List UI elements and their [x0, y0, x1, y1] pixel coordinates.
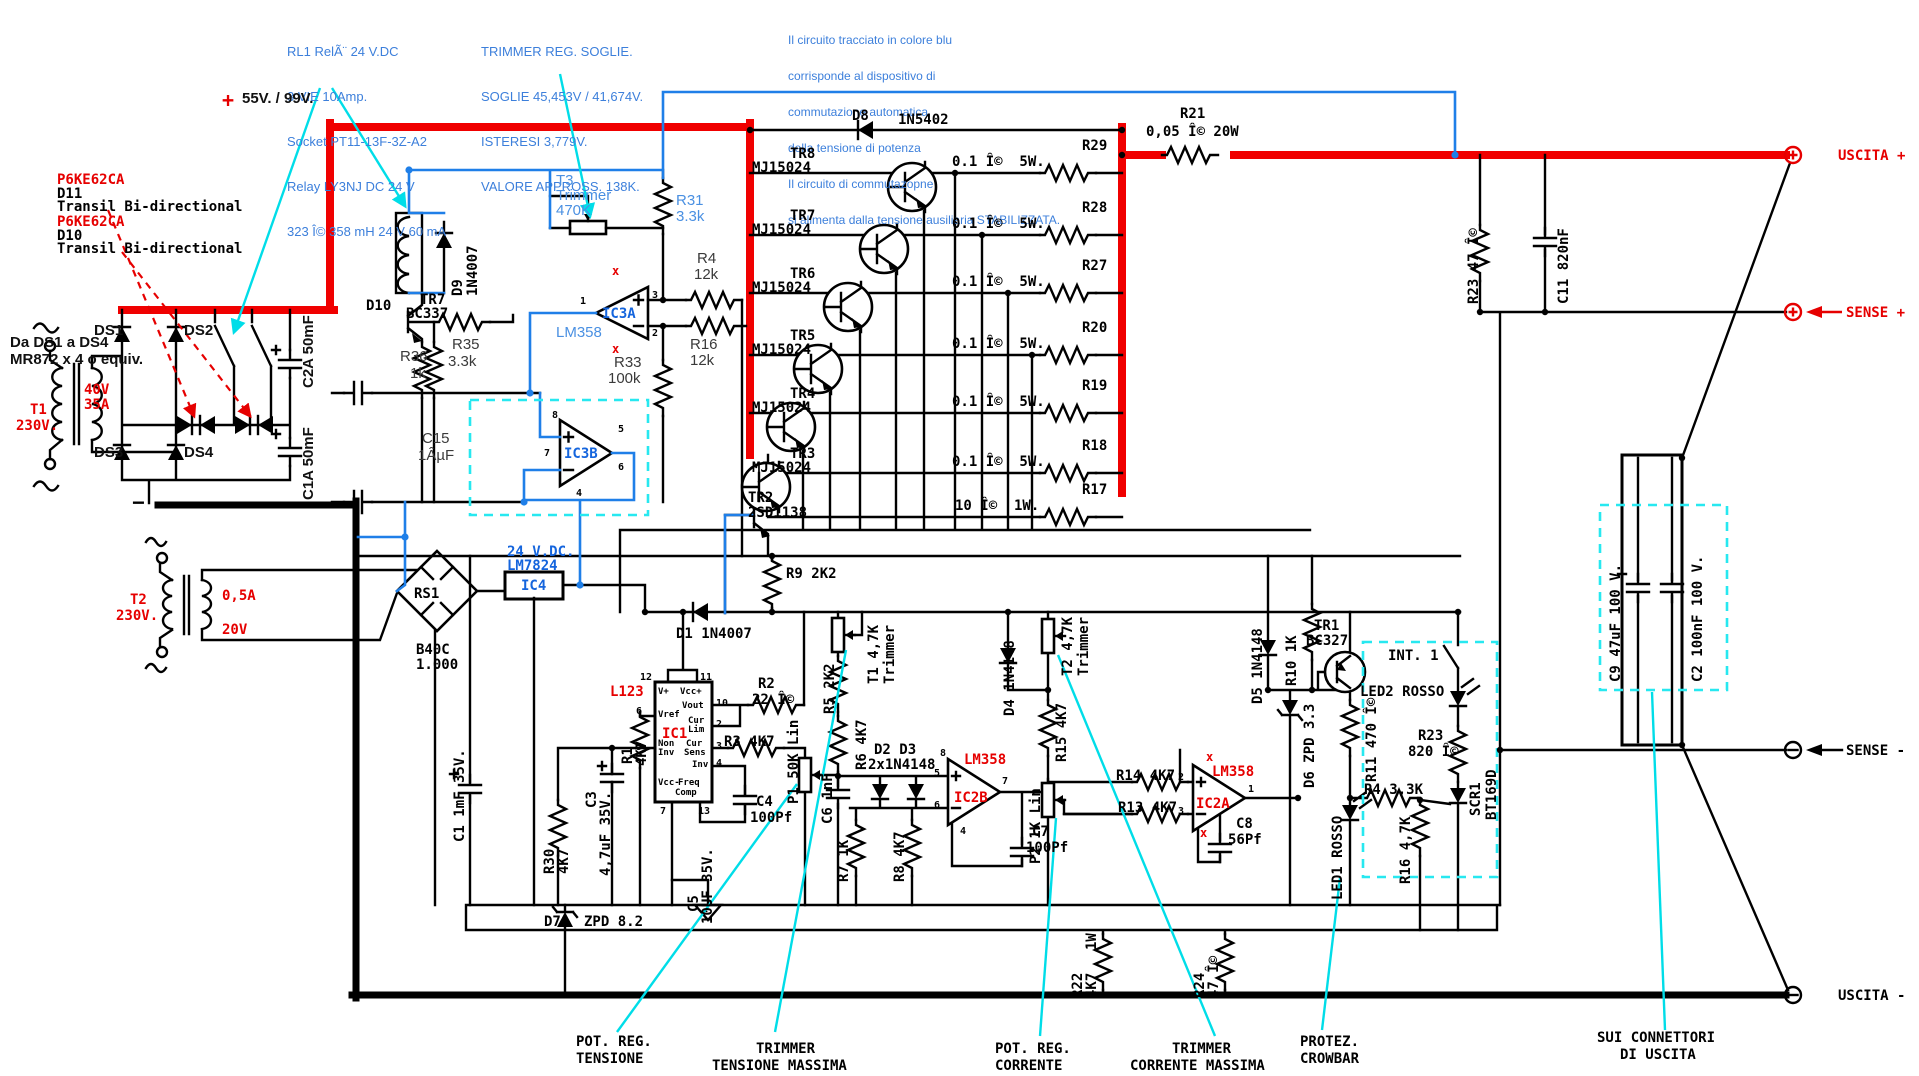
label-int1: INT. 1: [1388, 648, 1439, 664]
label-r10: R10 1K: [1284, 635, 1300, 686]
label-r18-val: 0.1 Î© 5W.: [952, 454, 1045, 470]
output-terminals: [1785, 147, 1842, 1003]
label-d6: D6 ZPD 3.3: [1302, 704, 1318, 788]
label-c2: C2 100nF 100 V.: [1690, 556, 1706, 682]
label-r35-33k: 3.3k: [448, 353, 476, 370]
pin-ic2a-3: 3: [1178, 806, 1184, 817]
label-c1: C1 1mF 35V.: [452, 749, 468, 842]
label-ic3a: IC3A: [602, 306, 636, 322]
callout-sui-1: SUI CONNETTORI: [1597, 1030, 1715, 1046]
label-bt169d: BT169D: [1484, 769, 1500, 820]
label-r22-1w: 1W: [1084, 933, 1100, 950]
pin-ic1-6: 6: [636, 706, 642, 717]
label-p2: P2 1K Lin: [1028, 788, 1044, 864]
pin-ic1-13: 13: [698, 806, 710, 817]
pin-ic2a-2: 2: [1178, 772, 1184, 783]
callout-trim-corrente-1: TRIMMER: [1172, 1041, 1231, 1057]
label-c15-1uf: 1ÂµF: [418, 447, 454, 464]
label-transil-b: Transil Bi-directional: [57, 241, 242, 257]
pin-ic1-inv: Inv: [692, 760, 708, 770]
label-c9: C9 47uF 100 V.: [1608, 564, 1624, 682]
label-r11: R11 470 Î©: [1364, 698, 1380, 782]
pin-ic2b-5: 5: [934, 768, 940, 779]
pin-ic1-vccm: Vcc-: [658, 778, 680, 788]
label-r16-12k: 12k: [690, 352, 714, 369]
pin-ic1-2: 2: [716, 719, 722, 730]
pin-ic1-sens: Sens: [684, 748, 706, 758]
pin-ic1-freq: Freq: [678, 778, 700, 788]
callout-pot-corrente-1: POT. REG.: [995, 1041, 1071, 1057]
callout-pot-tensione-1: POT. REG.: [576, 1034, 652, 1050]
label-r4-33k: R4 3,3K: [1364, 782, 1423, 798]
label-c2a: C2A 50mF: [300, 315, 317, 388]
label-c8: C8: [1236, 816, 1253, 832]
callout-protez-2: CROWBAR: [1300, 1051, 1359, 1067]
label-tr2: TR2: [748, 490, 773, 506]
callout-protez-1: PROTEZ.: [1300, 1034, 1359, 1050]
callout-pot-tensione-2: TENSIONE: [576, 1051, 643, 1067]
label-20v: 20V: [222, 622, 247, 638]
label-c15: C15: [422, 430, 450, 447]
note-blue-circuit: Il circuito tracciato in colore blu corr…: [788, 10, 1060, 250]
label-d4: D4 1N4148: [1002, 640, 1018, 716]
label-d5: D5 1N4148: [1250, 628, 1266, 704]
callout-pot-corrente-2: CORRENTE: [995, 1058, 1062, 1074]
label-40v: 40V: [84, 382, 109, 398]
label-r29-val: 0.1 Î© 5W.: [952, 154, 1045, 170]
label-r18: R18: [1082, 438, 1107, 454]
label-r23-820: 820 Î©: [1408, 744, 1459, 760]
label-d2d3-val: 2x1N4148: [868, 757, 935, 773]
label-r27-val: 0.1 Î© 5W.: [952, 274, 1045, 290]
pin-ic3b-5: 5: [618, 424, 624, 435]
label-r17: R17: [1082, 482, 1107, 498]
note-blue-2: corrisponde al dispositivo di: [788, 70, 1060, 82]
note-relay-4: Relay LY3NJ DC 24 V: [287, 179, 446, 194]
pin-ic1-vplus: V+: [658, 687, 669, 697]
pin-ic1-vccp: Vcc+: [680, 687, 702, 697]
label-uscita-plus: USCITA +: [1838, 148, 1905, 164]
pin-ic1-vout: Vout: [682, 701, 704, 711]
label-r28: R28: [1082, 200, 1107, 216]
pin-ic1-10: 10: [716, 698, 728, 709]
label-ds2: DS2: [184, 322, 213, 339]
label-r31-33k: 3.3k: [676, 208, 704, 225]
pin-ic2b-7: 7: [1002, 776, 1008, 787]
label-l123: L123: [610, 684, 644, 700]
label-r20: R20: [1082, 320, 1107, 336]
label-tr8-mj: MJ15024: [752, 160, 811, 176]
pin-ic2b-4: 4: [960, 826, 966, 837]
label-r27: R27: [1082, 258, 1107, 274]
plus-sign: +: [222, 88, 234, 112]
label-55v99v: 55V. / 99V.: [242, 90, 313, 107]
label-ic3b: IC3B: [564, 446, 598, 462]
label-r24-47: 47 Î©: [1206, 956, 1222, 998]
pin-ic1-3: 3: [716, 741, 722, 752]
label-r2: R2: [758, 676, 775, 692]
note-trimmer-3: ISTERESI 3,779V.: [481, 134, 643, 149]
pin-ic2a-1: 1: [1248, 784, 1254, 795]
label-tr2-2sd1138: 2SD1138: [748, 505, 807, 521]
callout-trim-corrente-2: CORRENTE MASSIMA: [1130, 1058, 1265, 1074]
label-led1: LED1 ROSSO: [1330, 816, 1346, 900]
pin-ic1-comp: Comp: [675, 788, 697, 798]
note-blue-4: della tensione di potenza: [788, 142, 1060, 154]
label-r22-4k7: 4K7: [1084, 973, 1100, 998]
pin-ic3b-4: 4: [576, 488, 582, 499]
label-r15: R15 4K7: [1054, 703, 1070, 762]
pin-ic3b-7: 7: [544, 448, 550, 459]
note-relay-5: 323 Î© 358 mH 24 V 60 mA: [287, 224, 446, 239]
label-r20-val: 0.1 Î© 5W.: [952, 336, 1045, 352]
label-t2-trim: T2 4,7K: [1060, 617, 1076, 676]
label-d2d3: D2 D3: [874, 742, 916, 758]
label-d8: D8: [852, 108, 869, 124]
pin-ic3a-1: 1: [580, 296, 586, 307]
label-ic2a: IC2A: [1196, 796, 1230, 812]
label-r21: R21: [1180, 106, 1205, 122]
label-tr6-mj: MJ15024: [752, 280, 811, 296]
label-r2-22: 22 Î©: [752, 692, 794, 708]
label-b40c: B40C: [416, 642, 450, 658]
pin-ic3a-2: 2: [652, 328, 658, 339]
label-sense-plus: SENSE +: [1846, 305, 1905, 321]
label-bc327: BC327: [1306, 633, 1348, 649]
label-ic4: IC4: [521, 578, 546, 594]
label-r14: R14 4K7: [1116, 768, 1175, 784]
label-r36: R36: [400, 348, 428, 365]
label-r13: R13 4K7: [1118, 800, 1177, 816]
label-r33-100k: 100k: [608, 370, 641, 387]
label-r23-crowbar: R23: [1418, 728, 1443, 744]
label-transil-a: Transil Bi-directional: [57, 199, 242, 215]
label-b40c-1000: 1.000: [416, 657, 458, 673]
label-r28-val: 0.1 Î© 5W.: [952, 216, 1045, 232]
label-r30-4k7: 4K7: [556, 849, 572, 874]
note-relay: RL1 RelÃ¨ 24 V.DC 3 VIE 10Amp. Socket PT…: [287, 14, 446, 269]
label-c11: C11 820nF: [1556, 228, 1572, 304]
label-scr1: SCR1: [1468, 782, 1484, 816]
label-r23-top: R23 47 Î©: [1466, 228, 1482, 304]
label-r4-12k: 12k: [694, 266, 718, 283]
callout-trim-tensione-2: TENSIONE MASSIMA: [712, 1058, 847, 1074]
label-t1: T1: [30, 402, 47, 418]
label-t2-trim2: Trimmer: [1076, 617, 1092, 676]
label-r16: R16: [690, 336, 718, 353]
note-blue-5: Il circuito di commutazopne: [788, 178, 1060, 190]
label-minus: −: [132, 490, 145, 516]
label-tr7-mj: MJ15024: [752, 222, 811, 238]
label-c4: C4: [756, 794, 773, 810]
label-tr5-mj: MJ15024: [752, 342, 811, 358]
label-r35: R35: [452, 336, 480, 353]
label-r33: R33: [614, 354, 642, 371]
label-tr4-mj: MJ15024: [752, 400, 811, 416]
label-lm358-ic2a: LM358: [1212, 764, 1254, 780]
label-d7: D7: [544, 914, 561, 930]
callout-sui-2: DI USCITA: [1620, 1047, 1696, 1063]
label-lm7824: LM7824: [507, 558, 558, 574]
xmark-ic2a-bot: x: [1200, 826, 1207, 840]
pin-ic1-noninv: Inv: [658, 748, 674, 758]
callout-trim-tensione-1: TRIMMER: [756, 1041, 815, 1057]
label-r8: R8 4K7: [892, 831, 908, 882]
label-35a: 35A: [84, 397, 109, 413]
pin-ic1-lim: Lim: [688, 725, 704, 735]
label-c6: C6 1nF: [820, 773, 836, 824]
label-tr1: TR1: [1314, 618, 1339, 634]
pin-ic1-vref: Vref: [658, 710, 680, 720]
label-t1-trim: T1 4,7K: [866, 625, 882, 684]
label-led2: LED2 ROSSO: [1360, 684, 1444, 700]
label-r19-val: 0.1 Î© 5W.: [952, 394, 1045, 410]
label-r17-val: 10 Î© 1W.: [955, 498, 1039, 514]
label-r3: R3 4K7: [724, 734, 775, 750]
label-lm358-ic3a: LM358: [556, 324, 602, 341]
label-r36-1k: 1k: [410, 365, 426, 382]
label-sense-minus: SENSE -: [1846, 743, 1905, 759]
pin-ic2b-8: 8: [940, 748, 946, 759]
note-trimmer-2: SOGLIE 45,453V / 41,674V.: [481, 89, 643, 104]
label-ic2b: IC2B: [954, 790, 988, 806]
pin-ic3a-3: 3: [652, 290, 658, 301]
pin-ic1-7: 7: [660, 806, 666, 817]
pin-ic1-12: 12: [640, 672, 652, 683]
xmark-ic3a-top: x: [612, 264, 619, 278]
label-lm358-ic2b: LM358: [964, 752, 1006, 768]
xmark-ic2a-top: x: [1206, 750, 1213, 764]
note-trimmer-1: TRIMMER REG. SOGLIE.: [481, 44, 643, 59]
note-relay-1: RL1 RelÃ¨ 24 V.DC: [287, 44, 446, 59]
label-d9: D9: [450, 279, 466, 296]
label-r5: R5 2K2: [822, 663, 838, 714]
label-d8-1n5402: 1N5402: [898, 112, 949, 128]
label-r31: R31: [676, 192, 704, 209]
label-r21-val: 0,05 Î© 20W: [1146, 124, 1239, 140]
label-c4-100pf: 100Pf: [750, 810, 792, 826]
label-p1: P1 50K Lin: [786, 720, 802, 804]
label-r29: R29: [1082, 138, 1107, 154]
label-d9-1n4007: 1N4007: [465, 245, 481, 296]
label-t2-230v: 230V.: [116, 608, 158, 624]
label-uscita-minus: USCITA -: [1838, 988, 1905, 1004]
label-c1a: C1A 50mF: [300, 427, 317, 500]
label-ds1: DS1: [94, 322, 123, 339]
label-r19: R19: [1082, 378, 1107, 394]
label-d7-zpd: ZPD 8.2: [584, 914, 643, 930]
label-r16-47k: R16 4,7K: [1398, 817, 1414, 884]
label-mr872: MR872 x 4 o equiv.: [10, 351, 143, 368]
highlight-boxes: [470, 400, 1727, 877]
label-d10-coil: D10: [366, 298, 391, 314]
pin-ic1-4: 4: [716, 758, 722, 769]
label-t2: T2: [130, 592, 147, 608]
pin-ic3b-6: 6: [618, 462, 624, 473]
schematic-page: RL1 RelÃ¨ 24 V.DC 3 VIE 10Amp. Socket PT…: [0, 0, 1919, 1076]
label-ds3: DS3: [94, 444, 123, 461]
pin-ic1-11: 11: [700, 672, 712, 683]
label-rs1: RS1: [414, 586, 439, 602]
label-ds4: DS4: [184, 444, 213, 461]
label-d1: D1 1N4007: [676, 626, 752, 642]
label-05a: 0,5A: [222, 588, 256, 604]
label-r1-4k7: 4K7: [634, 741, 650, 766]
label-c3-val: 4,7uF 35V.: [598, 792, 614, 876]
label-t3-470k: 470K: [556, 202, 591, 219]
label-t1-trim2: Trimmer: [882, 625, 898, 684]
pin-ic2b-6: 6: [934, 800, 940, 811]
label-bc337: BC337: [406, 306, 448, 322]
label-r7: R7 1K: [836, 840, 852, 882]
note-relay-3: Socket PT11-13F-3Z-A2: [287, 134, 446, 149]
label-r4: R4: [697, 250, 716, 267]
note-blue-1: Il circuito tracciato in colore blu: [788, 34, 1060, 46]
label-c8-56pf: 56Pf: [1228, 832, 1262, 848]
label-t1-230v: 230V.: [16, 418, 58, 434]
pin-ic3b-8: 8: [552, 410, 558, 421]
label-c5-val: 10UF 35V.: [700, 848, 716, 924]
label-r9: R9 2K2: [786, 566, 837, 582]
label-tr3-mj: MJ15024: [752, 460, 811, 476]
